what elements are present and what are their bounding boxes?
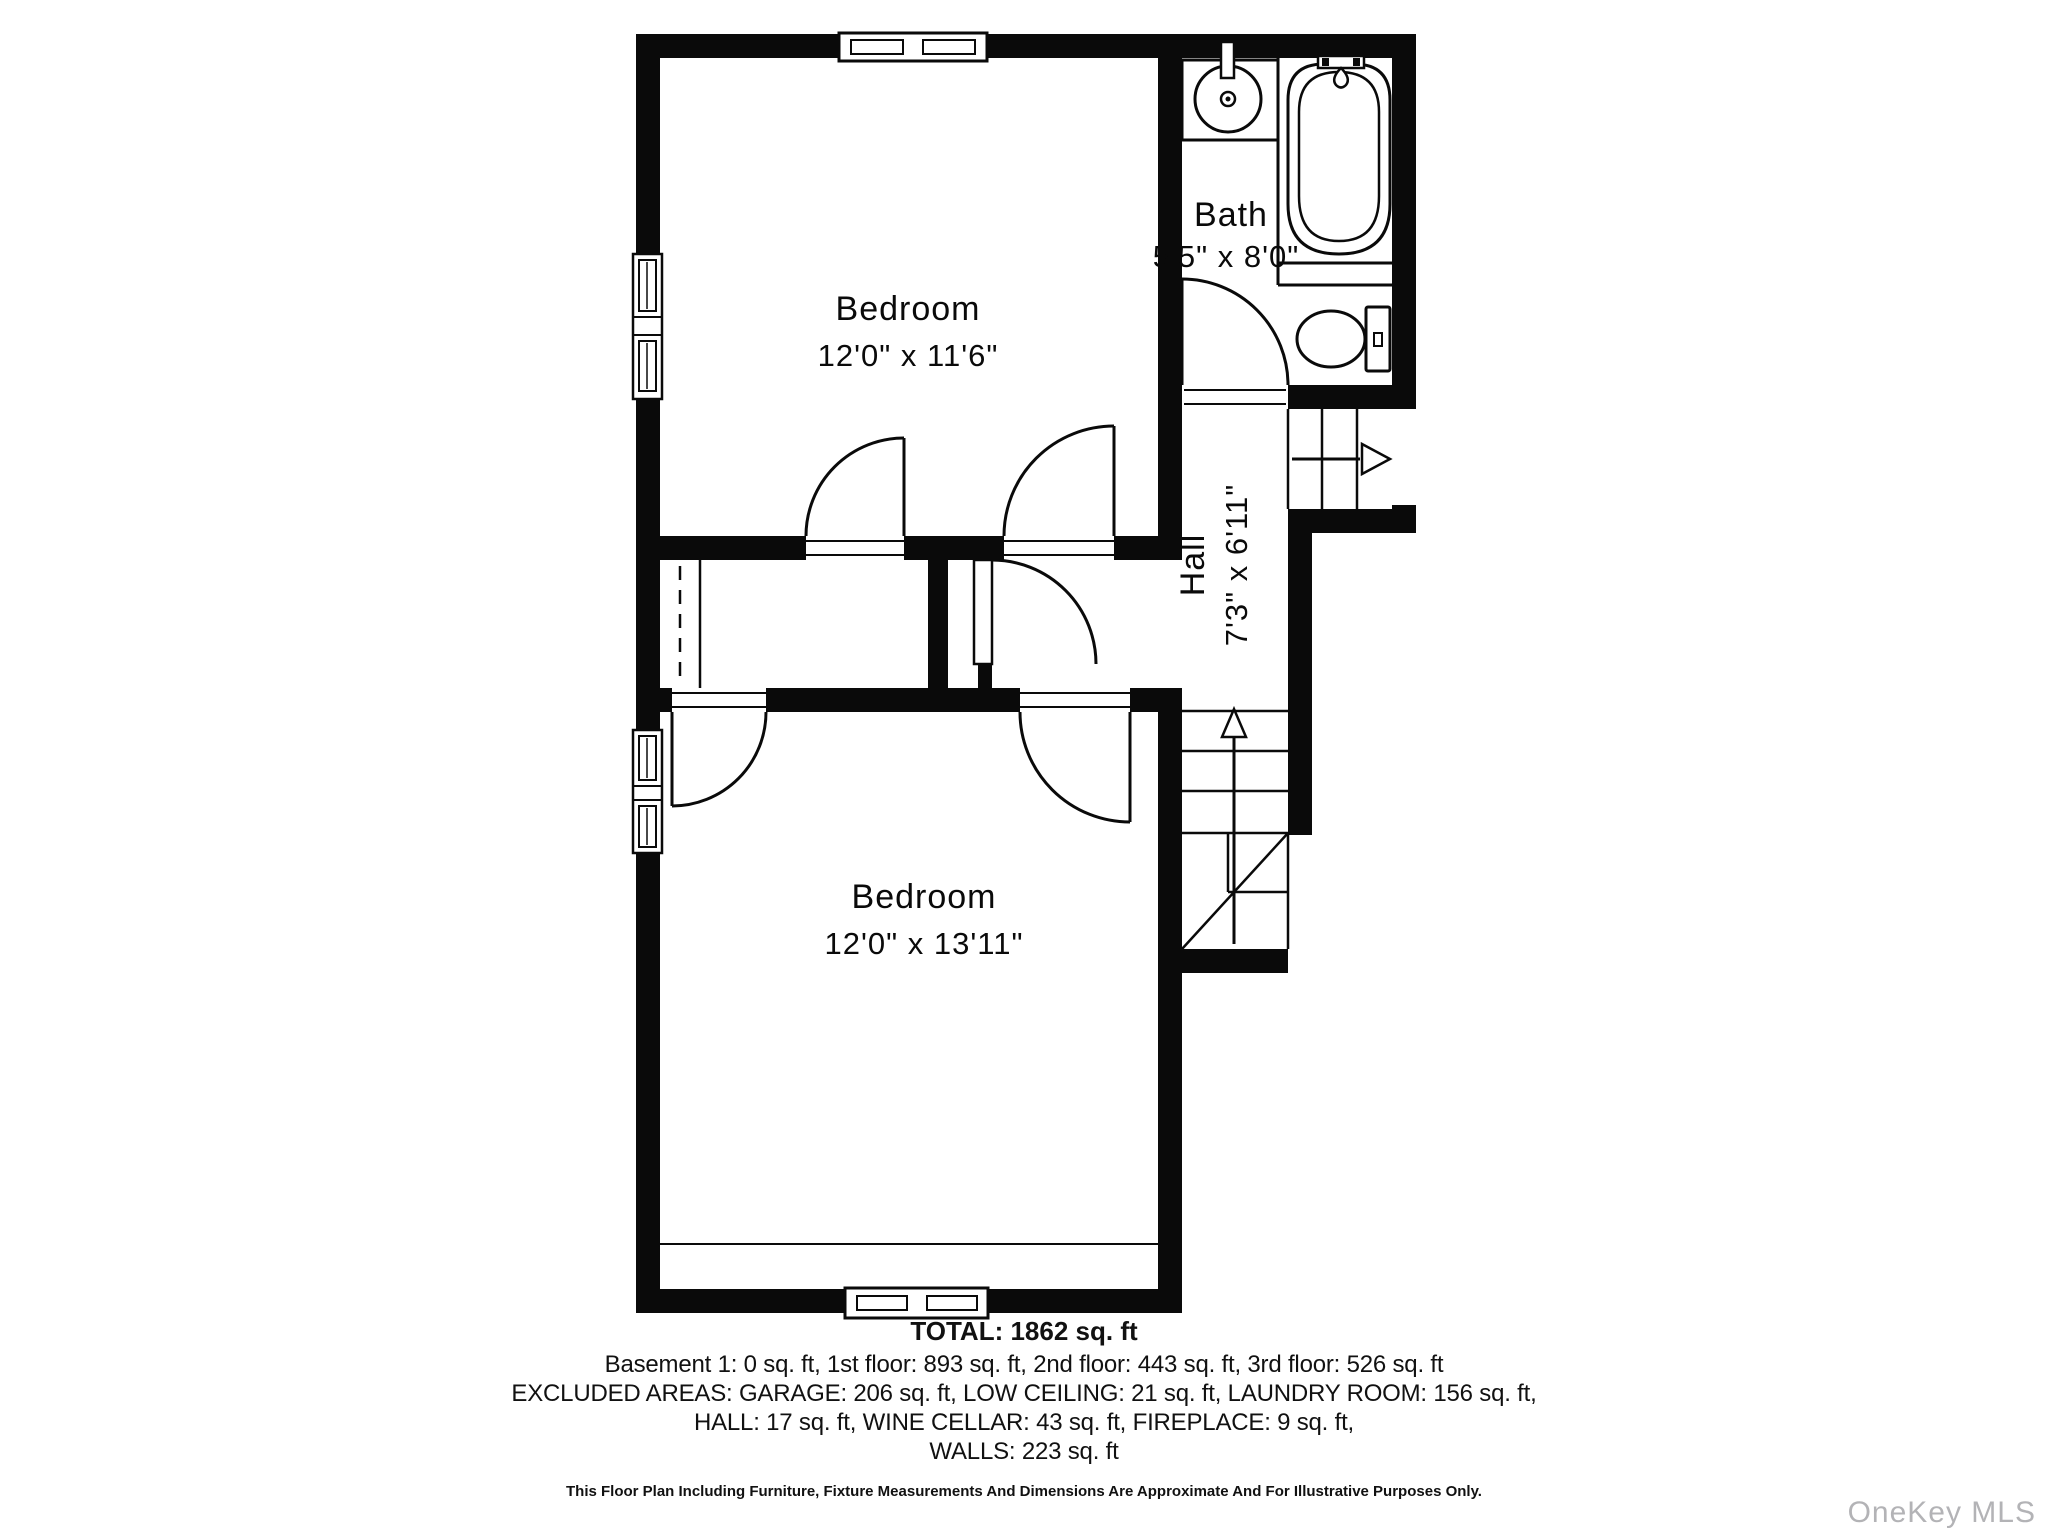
bath-dims-label: 5'5" x 8'0" [1153, 239, 1300, 274]
stairs-upper-icon [1288, 409, 1390, 509]
wall-bath-right [1392, 34, 1416, 409]
bedroom2-name-label: Bedroom [852, 878, 997, 916]
door-hall-closet [974, 560, 1096, 664]
wall-upper-stair-bottom [1288, 509, 1416, 533]
hall-name-label: Hall [1174, 534, 1212, 597]
excluded-areas-line3: WALLS: 223 sq. ft [324, 1438, 1724, 1466]
window-bedroom1-top [839, 33, 987, 61]
bedroom2-dims-label: 12'0" x 13'11" [825, 926, 1024, 961]
wall-stairwell-west [1288, 533, 1312, 835]
watermark: OneKey MLS [1848, 1496, 2036, 1530]
floor-plan-drawing: Bedroom 12'0" x 11'6" Bath 5'5" x 8'0" H… [0, 0, 2048, 1536]
bedroom1-dims-label: 12'0" x 11'6" [818, 338, 999, 373]
excluded-areas-line1: EXCLUDED AREAS: GARAGE: 206 sq. ft, LOW … [324, 1380, 1724, 1408]
arrow-up-icon [1222, 709, 1246, 737]
window-bedroom2-left [633, 730, 662, 853]
floor-plan-page: Bedroom 12'0" x 11'6" Bath 5'5" x 8'0" H… [0, 0, 2048, 1536]
wall-closet-divider [928, 560, 948, 688]
door-bath [1182, 279, 1288, 385]
window-bedroom1-left [633, 254, 662, 399]
floor-areas-text: Basement 1: 0 sq. ft, 1st floor: 893 sq.… [324, 1351, 1724, 1379]
excluded-areas-line2: HALL: 17 sq. ft, WINE CELLAR: 43 sq. ft,… [324, 1409, 1724, 1437]
bedroom1-name-label: Bedroom [836, 290, 981, 328]
wall-bath-bottom [1288, 385, 1416, 409]
door-bedroom2-right [1020, 712, 1130, 822]
wall-closet-door-stub [978, 664, 992, 688]
toilet-icon [1297, 307, 1390, 371]
wall-top [636, 34, 1416, 58]
stairs [1182, 409, 1390, 949]
bath-name-label: Bath [1194, 196, 1268, 234]
arrow-right-icon [1362, 444, 1390, 474]
window-bedroom2-bottom [845, 1288, 988, 1318]
closet-lines [680, 560, 700, 688]
hall-dims-label: 7'3" x 6'11" [1219, 484, 1254, 646]
wall-bedroom2-right [1158, 688, 1182, 1313]
door-bedroom1-right [1004, 426, 1114, 536]
wall-bedroom1-right [1158, 34, 1182, 560]
stairs-lower-icon [1182, 709, 1288, 949]
door-bedroom2-left [672, 712, 766, 806]
total-area-text: TOTAL: 1862 sq. ft [324, 1316, 1724, 1347]
wall-left [636, 34, 660, 1313]
disclaimer-text: This Floor Plan Including Furniture, Fix… [324, 1483, 1724, 1500]
door-bedroom1-left [806, 438, 904, 536]
